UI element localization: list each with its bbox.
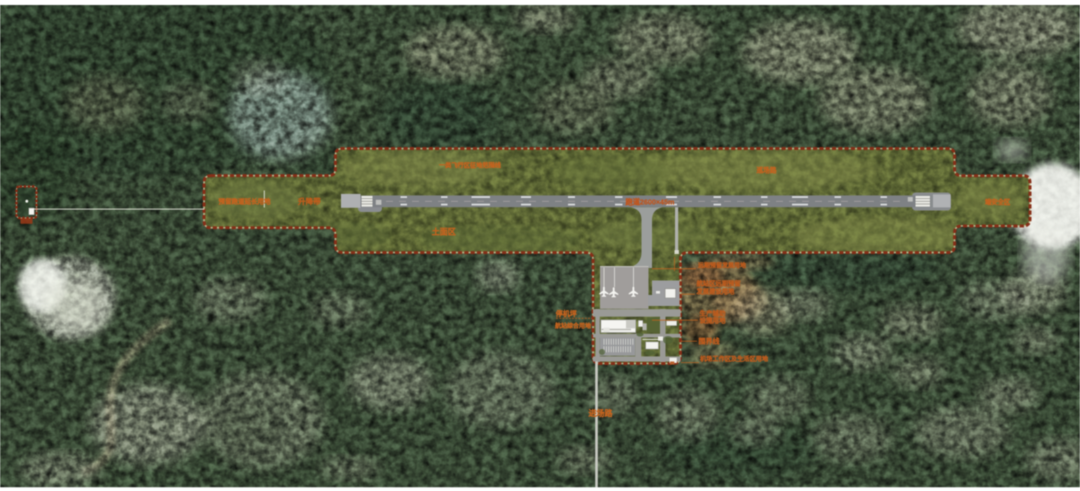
svg-text:机场工作区及生活区用地: 机场工作区及生活区用地	[700, 355, 769, 363]
svg-text:预留跑道延长用地: 预留跑道延长用地	[219, 197, 272, 206]
svg-text:航站综合用地: 航站综合用地	[555, 322, 591, 330]
svg-text:端安全区: 端安全区	[985, 197, 1011, 206]
svg-text:巡场路: 巡场路	[756, 166, 777, 175]
svg-text:生产辅助: 生产辅助	[700, 309, 727, 318]
svg-text:发展建设用地: 发展建设用地	[696, 286, 735, 295]
svg-text:围界线: 围界线	[699, 337, 720, 346]
svg-text:航站区远期预留: 航站区远期预留	[697, 279, 741, 288]
svg-text:远期预留发展用地: 远期预留发展用地	[698, 262, 746, 270]
svg-text:进场路: 进场路	[589, 408, 614, 418]
svg-text:土面区: 土面区	[432, 227, 456, 237]
svg-text:停机坪: 停机坪	[556, 309, 577, 318]
svg-text:设施用地: 设施用地	[700, 315, 727, 324]
svg-text:一类飞行区征地范围线: 一类飞行区征地范围线	[439, 162, 502, 170]
svg-text:升降带: 升降带	[298, 196, 321, 206]
svg-text:跑道2600×45m: 跑道2600×45m	[626, 197, 675, 206]
